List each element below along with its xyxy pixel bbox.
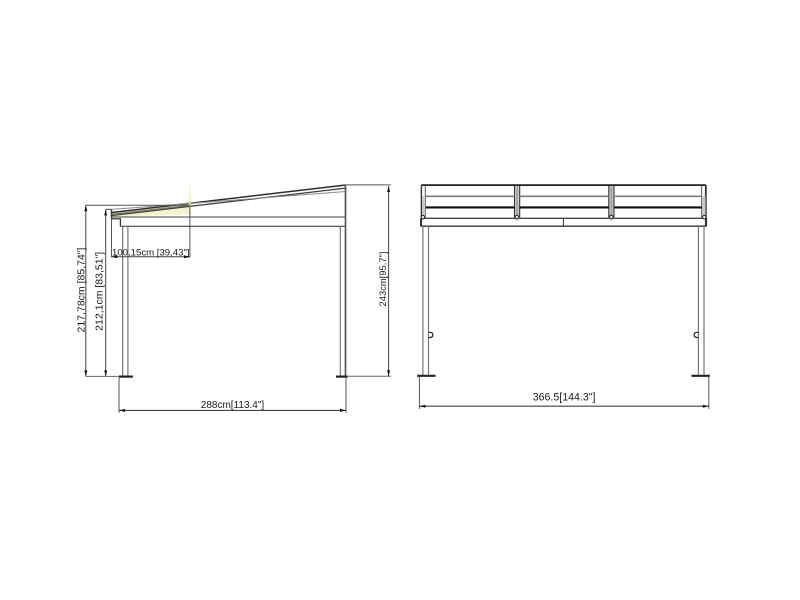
- svg-text:217,78cm [85,74"]: 217,78cm [85,74"]: [75, 247, 87, 332]
- svg-text:243cm[95.7"]: 243cm[95.7"]: [377, 252, 388, 307]
- svg-text:212,1cm [83,51"]: 212,1cm [83,51"]: [94, 252, 106, 331]
- svg-text:366.5[144.3"]: 366.5[144.3"]: [533, 391, 596, 403]
- svg-text:100,15cm [39,43"]: 100,15cm [39,43"]: [112, 247, 190, 258]
- svg-text:288cm[113.4"]: 288cm[113.4"]: [201, 400, 265, 411]
